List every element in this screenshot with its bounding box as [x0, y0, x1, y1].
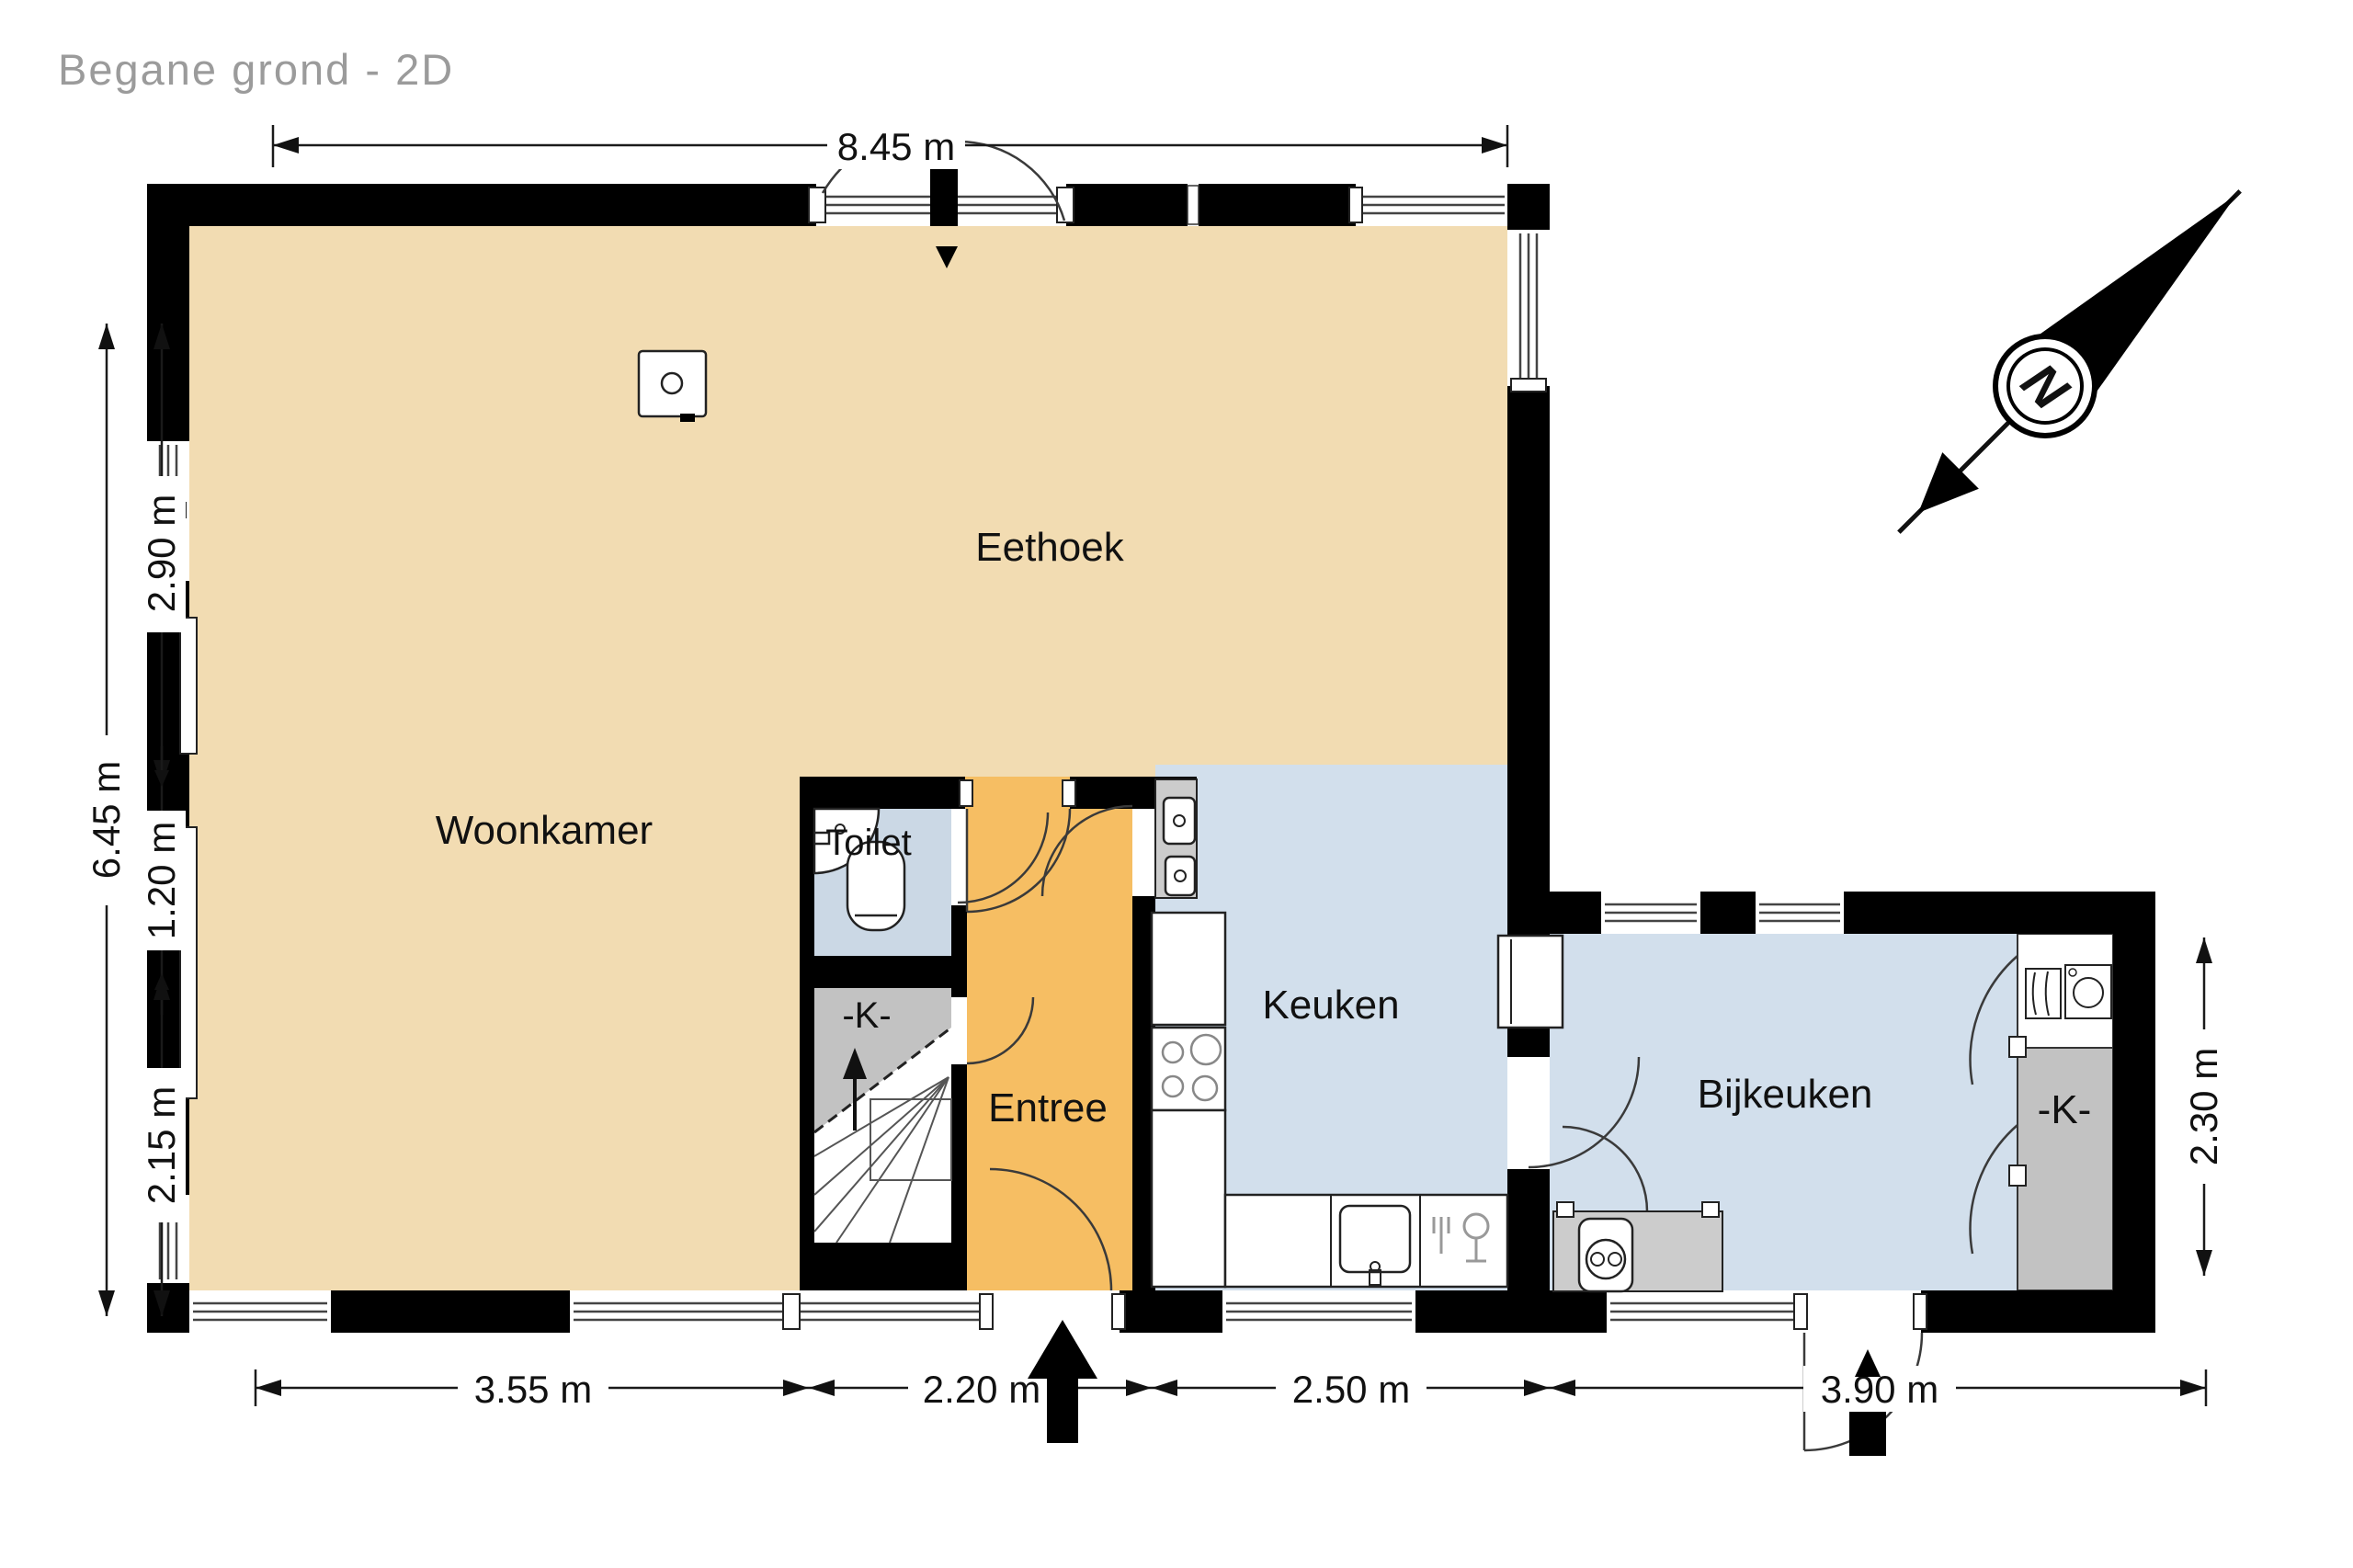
room-label-toilet: Toilet: [825, 823, 911, 863]
utility-top-window-right: [1756, 892, 1844, 934]
room-label-eethoek: Eethoek: [975, 525, 1124, 570]
room-label-woonkamer: Woonkamer: [436, 808, 653, 853]
dim-bottom-woonkamer: 3.55 m: [256, 1366, 809, 1412]
utility-top-window-left: [1601, 892, 1700, 934]
utility-counter: [1553, 1202, 1722, 1291]
stove-fireplace-icon: [639, 351, 706, 422]
svg-text:2.15 m: 2.15 m: [140, 1086, 183, 1204]
bottom-window-middle: [570, 1290, 985, 1333]
utility-bottom-window: [1607, 1290, 1800, 1333]
svg-text:2.50 m: 2.50 m: [1292, 1368, 1410, 1411]
compass-rose: N: [1864, 156, 2276, 568]
cooktop-icon: [1152, 1028, 1225, 1110]
dim-bottom-entree: 2.20 m: [809, 1320, 1152, 1443]
svg-text:6.45 m: 6.45 m: [85, 761, 128, 879]
kitchen-counter-left: [1152, 1110, 1225, 1287]
room-label-entree: Entree: [988, 1085, 1108, 1131]
floor-entry: [967, 809, 1132, 1290]
radiator-niche-upper: [180, 618, 197, 754]
dim-bottom-keuken: 2.50 m: [1152, 1366, 1550, 1412]
kitchen-cabinet: [1152, 913, 1225, 1025]
page-title: Begane grond - 2D: [58, 44, 454, 95]
bottom-window-kitchen: [1222, 1290, 1415, 1333]
room-label-bijkeuken-closet: -K-: [2038, 1087, 2092, 1132]
boiler-unit: [1498, 936, 1563, 1028]
bottom-window-left: [189, 1290, 331, 1333]
room-label-bijkeuken: Bijkeuken: [1698, 1072, 1873, 1117]
dim-left-total: 6.45 m: [83, 324, 131, 1316]
utility-appliance-icon: [1579, 1219, 1632, 1291]
svg-text:3.55 m: 3.55 m: [474, 1368, 592, 1411]
floorplan-page: Begane grond - 2D: [0, 0, 2353, 1568]
svg-text:2.90 m: 2.90 m: [140, 494, 183, 612]
svg-text:1.20 m: 1.20 m: [140, 822, 183, 939]
kitchen-niche: [1155, 779, 1197, 898]
floor-entry-doorway: [965, 777, 1070, 809]
room-label-keuken: Keuken: [1262, 983, 1399, 1028]
svg-text:3.90 m: 3.90 m: [1821, 1368, 1938, 1411]
floor-utility-closet: [2018, 1048, 2113, 1290]
svg-text:2.30 m: 2.30 m: [2182, 1048, 2225, 1165]
dim-bottom-bijkeuken: 3.90 m: [1550, 1349, 2206, 1456]
svg-text:2.20 m: 2.20 m: [923, 1368, 1040, 1411]
room-label-hal-closet: -K-: [842, 995, 891, 1036]
svg-text:8.45 m: 8.45 m: [837, 125, 955, 168]
dim-right-bijkeuken: 2.30 m: [2180, 937, 2228, 1276]
dim-top-width: 8.45 m: [273, 121, 1507, 169]
floorplan-canvas: Eethoek Woonkamer Toilet -K- Entree Keuk…: [0, 0, 2353, 1568]
